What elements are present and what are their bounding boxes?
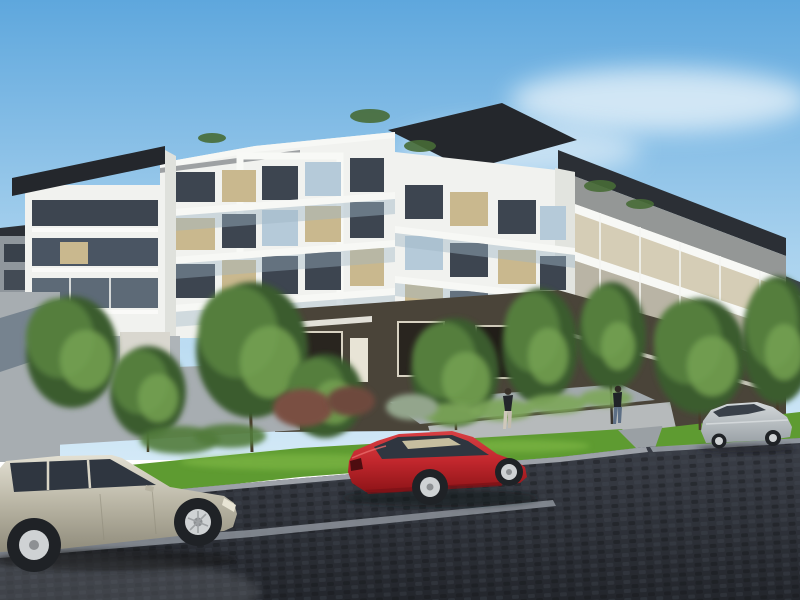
rooftop-plants-4 — [350, 109, 390, 123]
tree-2 — [110, 346, 186, 438]
car-alloy-left — [715, 437, 723, 445]
rooftop-plants-2 — [626, 199, 654, 209]
ped-head — [505, 388, 512, 395]
shrub-red-2 — [327, 386, 375, 416]
tree-7 — [578, 282, 646, 390]
cloud-1 — [510, 68, 800, 132]
rooftop-plants-5 — [198, 133, 226, 143]
car-shadow — [696, 444, 796, 454]
car-hub-front — [506, 469, 512, 475]
rooftop-plants-3 — [404, 140, 436, 152]
car-hub-rear — [427, 484, 434, 491]
render-photo — [0, 0, 800, 600]
left-tower-side — [165, 150, 176, 340]
tree-1 — [26, 296, 118, 408]
bush-sage — [386, 394, 438, 420]
rooftop-plants-1 — [584, 180, 616, 192]
car-hub-rear — [29, 540, 39, 550]
car-alloy-right — [769, 434, 777, 442]
tree-8 — [654, 298, 746, 414]
annex-window-2 — [4, 270, 26, 290]
ped-torso — [613, 392, 622, 407]
tree-6 — [502, 288, 578, 404]
ped-head — [615, 386, 622, 393]
annex-window-1 — [4, 244, 26, 262]
shrub-red-1 — [273, 389, 333, 427]
scene-canvas — [0, 0, 800, 600]
